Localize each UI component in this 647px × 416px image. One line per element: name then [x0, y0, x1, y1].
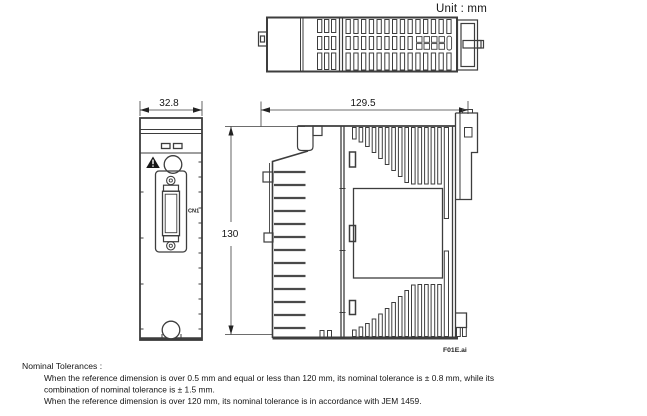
side-top-fins	[353, 128, 449, 219]
mounting-hole	[162, 321, 181, 339]
drawing-page: Unit : mm 32.8 129.5 130 CN1 F01E.ai Nom…	[0, 0, 647, 416]
case-divider	[340, 126, 346, 338]
cn1-label: CN1	[188, 209, 199, 215]
arrow-down-icon	[228, 326, 233, 335]
tolerance-line-2: combination of nominal tolerance is ± 1.…	[44, 385, 215, 395]
arrow-left-icon	[261, 107, 270, 112]
top-view	[259, 18, 484, 72]
top-view-vent-slats	[346, 20, 451, 71]
tolerance-line-3: When the reference dimension is over 120…	[44, 396, 422, 406]
left-clip	[259, 32, 268, 46]
top-view-outline	[267, 18, 457, 72]
height-value: 130	[222, 229, 239, 240]
divider-slots	[350, 152, 356, 315]
front-view-outline	[140, 118, 202, 340]
cn1-connector	[156, 171, 187, 252]
top-view-square-grid	[417, 36, 452, 50]
front-width-value: 32.8	[159, 98, 179, 109]
side-left-fins	[274, 172, 306, 328]
side-bottom-fins	[320, 251, 449, 337]
dimension-drawing: Unit : mm 32.8 129.5 130 CN1 F01E.ai Nom…	[0, 0, 647, 416]
status-leds	[162, 144, 183, 149]
label-plate	[354, 189, 443, 279]
tolerance-title: Nominal Tolerances :	[22, 361, 102, 371]
unit-label: Unit : mm	[436, 3, 487, 15]
arrow-right-icon	[193, 107, 202, 112]
top-screw-icon	[167, 176, 175, 184]
depth-value: 129.5	[350, 98, 375, 109]
file-label: F01E.ai	[443, 347, 467, 354]
side-view	[225, 101, 478, 338]
top-view-small-slots	[318, 20, 336, 70]
front-view	[140, 101, 202, 340]
side-right-connector	[453, 110, 478, 339]
arrow-up-icon	[228, 127, 233, 136]
bottom-screw-icon	[167, 242, 175, 250]
tolerance-note: Nominal Tolerances : When the reference …	[22, 361, 494, 406]
top-view-connector	[458, 20, 484, 70]
arrow-left-icon	[140, 107, 149, 112]
edge-seam-ticks	[140, 162, 202, 329]
warning-icon	[146, 157, 160, 169]
left-tabs	[263, 172, 273, 242]
side-left-edge	[273, 151, 309, 338]
tolerance-line-1: When the reference dimension is over 0.5…	[44, 373, 494, 383]
din-hook	[298, 126, 323, 151]
